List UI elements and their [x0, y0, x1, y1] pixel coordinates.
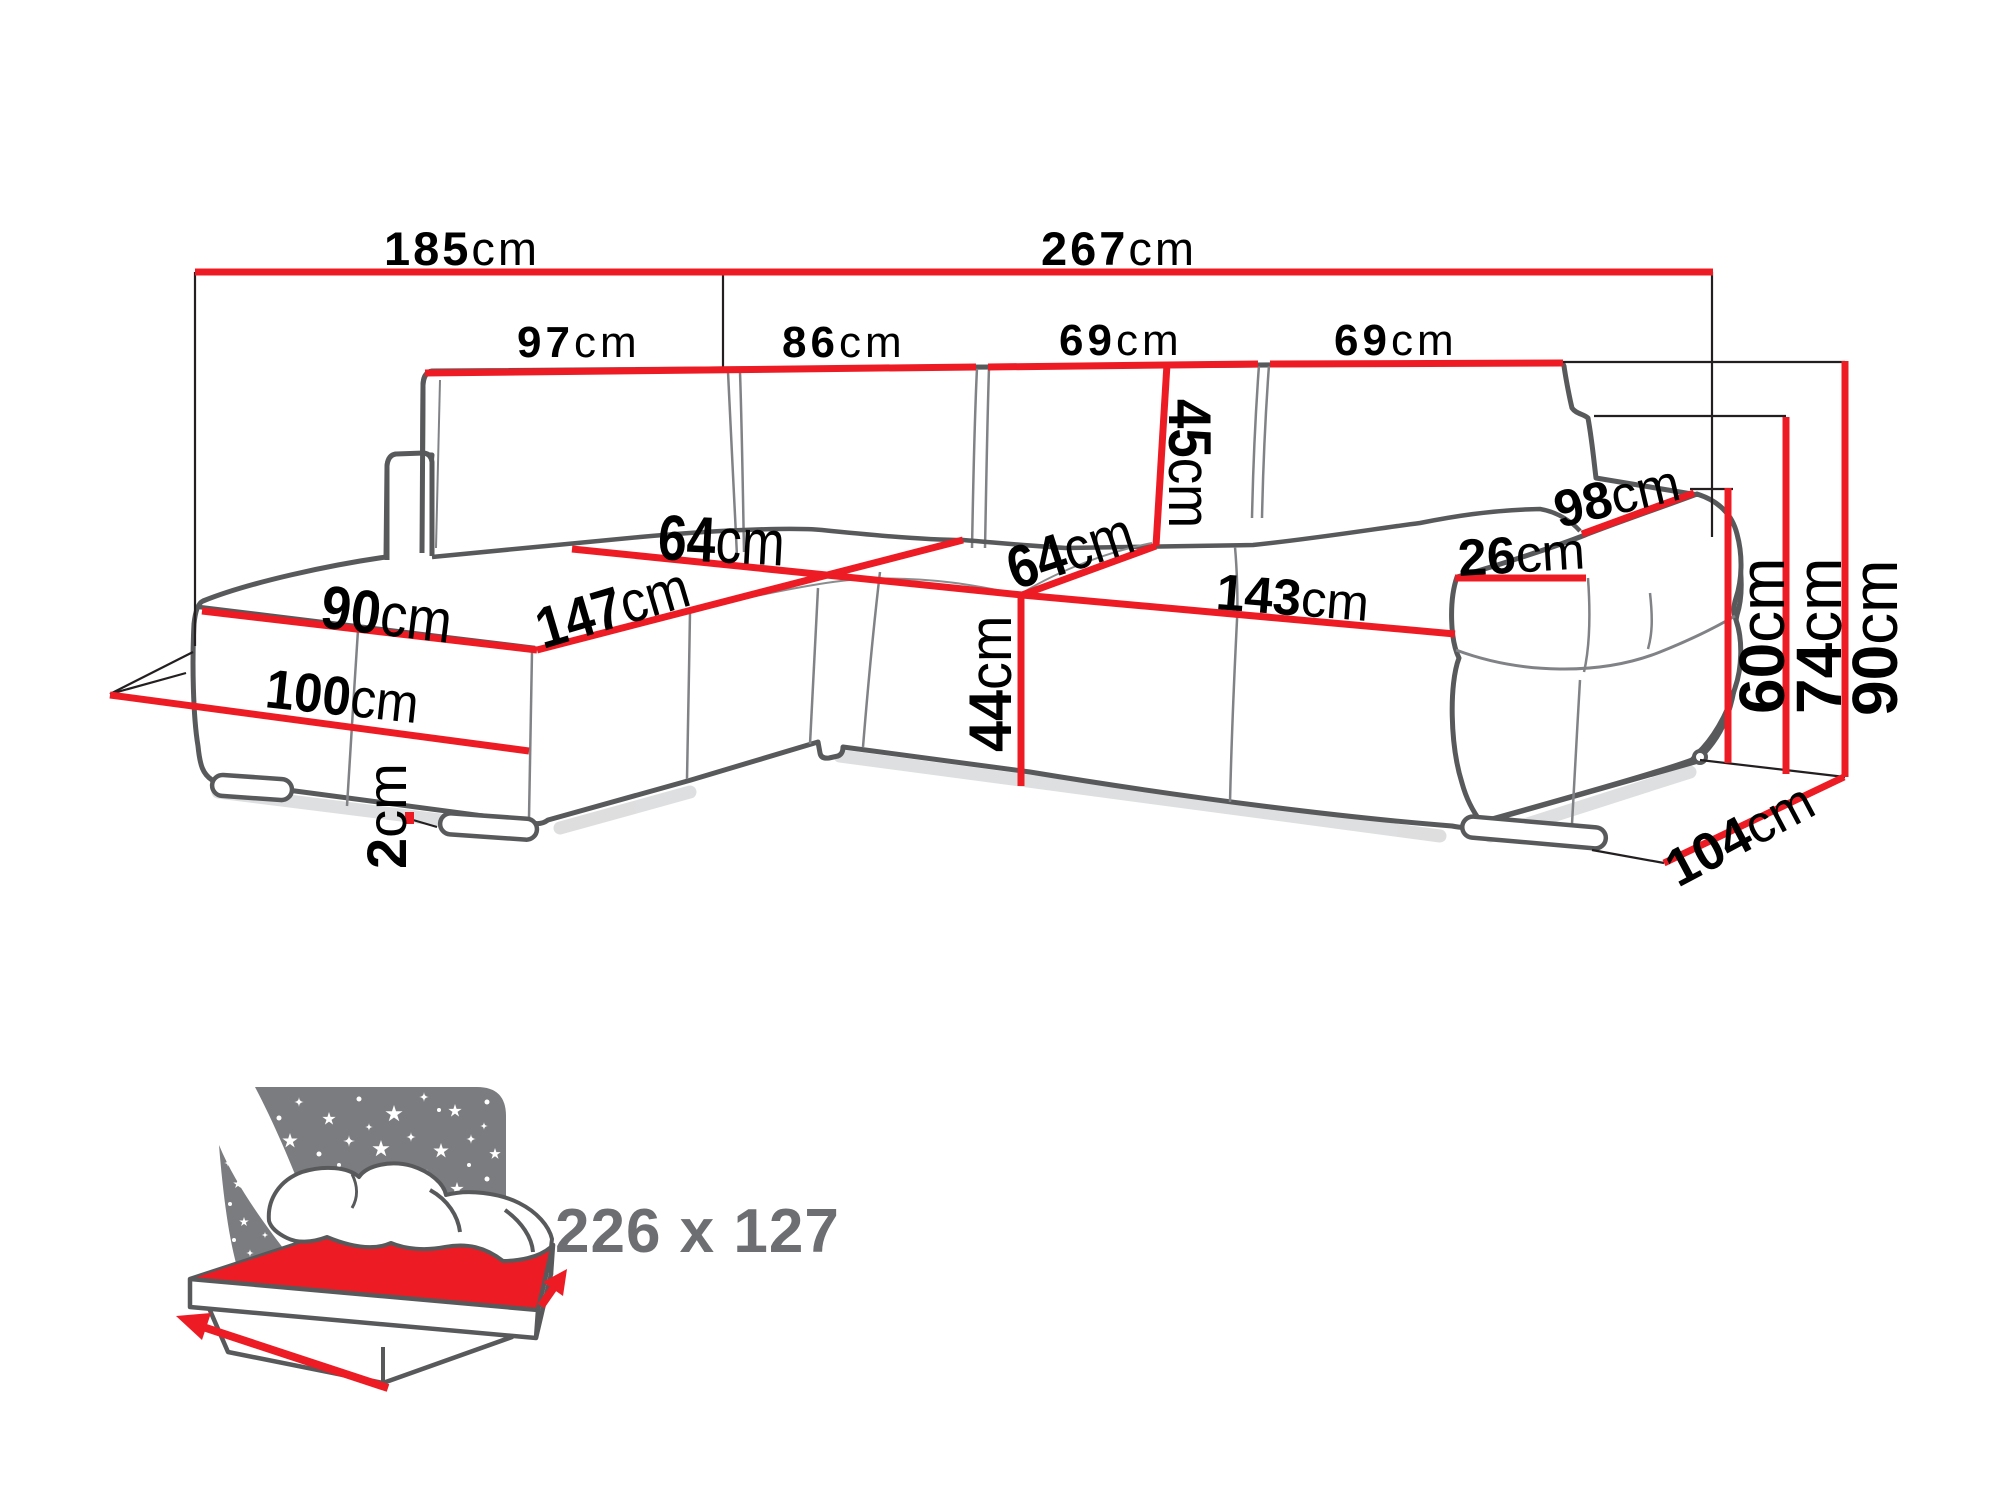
svg-text:90cm: 90cm [1839, 560, 1911, 717]
svg-text:267cm: 267cm [1041, 222, 1197, 275]
svg-text:26cm: 26cm [1456, 522, 1586, 588]
svg-text:44cm: 44cm [958, 616, 1024, 752]
svg-text:69cm: 69cm [1334, 316, 1458, 365]
svg-text:69cm: 69cm [1059, 316, 1183, 365]
svg-text:86cm: 86cm [782, 318, 906, 367]
svg-text:97cm: 97cm [517, 318, 641, 367]
svg-text:185cm: 185cm [384, 222, 540, 275]
svg-text:226 x 127: 226 x 127 [555, 1197, 840, 1266]
svg-text:45cm: 45cm [1156, 399, 1223, 528]
svg-text:143cm: 143cm [1214, 563, 1371, 632]
svg-text:2cm: 2cm [355, 763, 418, 869]
